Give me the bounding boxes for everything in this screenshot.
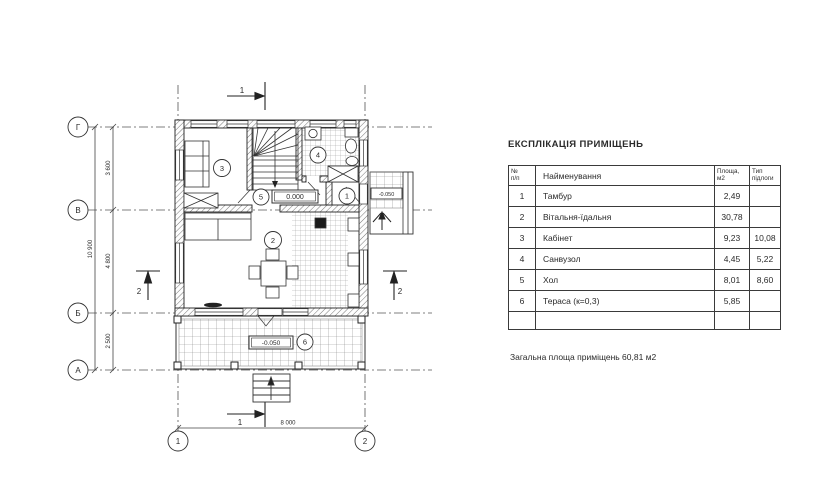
table-row: 6 Тераса (к=0,3) 5,85	[509, 291, 781, 312]
grid-bubble-b: Б	[68, 303, 88, 323]
section-mark-1-top	[227, 82, 265, 110]
row-num: 6	[509, 291, 536, 312]
staircase	[252, 128, 298, 190]
row-area: 9,23	[715, 228, 750, 249]
row-name: Хол	[536, 270, 715, 291]
svg-text:5: 5	[259, 193, 263, 202]
window-right-2	[360, 250, 368, 284]
window-bottom-2	[283, 309, 308, 316]
row-num: 4	[509, 249, 536, 270]
elevation-hall: 0.000	[272, 190, 318, 203]
window-top-3	[257, 121, 295, 128]
svg-text:Г: Г	[76, 123, 81, 132]
sofa-study	[185, 141, 209, 187]
svg-text:0.000: 0.000	[286, 194, 304, 201]
section-mark-2-right	[383, 271, 407, 300]
dim-seg-ba: 2 500	[106, 333, 112, 349]
row-num: 1	[509, 186, 536, 207]
entrance-porch	[370, 172, 413, 234]
row-floor	[750, 291, 781, 312]
grid-bubble-1: 1	[168, 431, 188, 451]
row-area: 5,85	[715, 291, 750, 312]
section-label-right: 2	[398, 287, 403, 296]
sink-bath	[346, 157, 358, 166]
section-mark-1-bottom	[227, 402, 265, 427]
grid-bubble-2: 2	[355, 431, 375, 451]
stove	[315, 218, 326, 228]
header-floor: Тип підлоги	[750, 166, 781, 186]
svg-text:А: А	[75, 366, 81, 375]
explication-table: № п/п Найменування Площа, м2 Тип підлоги…	[508, 165, 781, 330]
svg-text:В: В	[75, 206, 80, 215]
svg-text:3: 3	[220, 164, 224, 173]
dim-seg-vb: 4 800	[106, 253, 112, 269]
room-label-6: 6	[297, 334, 313, 350]
dim-seg-gv: 3 600	[106, 160, 112, 176]
svg-text:2: 2	[271, 236, 275, 245]
row-floor	[750, 186, 781, 207]
grid-bubble-v: В	[68, 200, 88, 220]
total-area-note: Загальна площа приміщень 60,81 м2	[510, 352, 656, 362]
floor-plan: 10 900 3 600 4 800 2 500 8 000	[0, 0, 460, 493]
door-leaf-study	[238, 190, 250, 203]
header-name: Найменування	[536, 166, 715, 186]
window-left-2	[176, 243, 184, 283]
elevation-terrace: -0.050	[249, 336, 293, 349]
header-num: № п/п	[509, 166, 536, 186]
row-num: 2	[509, 207, 536, 228]
row-name: Вітальня-їдальня	[536, 207, 715, 228]
row-floor	[750, 207, 781, 228]
svg-text:4: 4	[316, 151, 320, 160]
window-top-2	[227, 121, 248, 128]
grid-bubble-a: А	[68, 360, 88, 380]
dim-total-width: 8 000	[280, 421, 296, 427]
svg-text:1: 1	[176, 437, 181, 446]
row-area: 4,45	[715, 249, 750, 270]
explication-title: ЕКСПЛІКАЦІЯ ПРИМІЩЕНЬ	[508, 139, 643, 150]
row-name: Санвузол	[536, 249, 715, 270]
kitchen-counter	[348, 218, 359, 307]
row-name: Тераса (к=0,3)	[536, 291, 715, 312]
room-label-5: 5	[253, 189, 269, 205]
table-header: № п/п Найменування Площа, м2 Тип підлоги	[509, 166, 781, 186]
terrace	[174, 316, 365, 402]
window-top-5	[344, 121, 356, 128]
row-name: Кабінет	[536, 228, 715, 249]
row-area: 8,01	[715, 270, 750, 291]
row-num: 5	[509, 270, 536, 291]
table-row-empty	[509, 312, 781, 330]
table-row: 3 Кабінет 9,23 10,08	[509, 228, 781, 249]
row-name: Тамбур	[536, 186, 715, 207]
sofa-living	[185, 213, 251, 240]
grid-bubble-g: Г	[68, 117, 88, 137]
window-right-1	[360, 140, 368, 166]
room-label-3: 3	[214, 160, 231, 177]
section-label-left: 2	[137, 287, 142, 296]
elevation-porch: -0.050	[371, 188, 402, 199]
room-label-4: 4	[310, 147, 326, 163]
svg-text:1: 1	[345, 192, 349, 201]
table-row: 4 Санвузол 4,45 5,22	[509, 249, 781, 270]
svg-text:Б: Б	[75, 309, 80, 318]
drawing-sheet: 10 900 3 600 4 800 2 500 8 000	[0, 0, 813, 493]
row-area: 2,49	[715, 186, 750, 207]
window-top-1	[191, 121, 217, 128]
dining-table	[249, 249, 298, 298]
svg-text:-0.050: -0.050	[262, 340, 281, 347]
wardrobe-hall	[328, 166, 358, 182]
svg-text:-0.050: -0.050	[379, 192, 395, 198]
floor-mat	[204, 303, 222, 308]
window-bottom-1	[195, 309, 243, 316]
svg-text:6: 6	[303, 338, 307, 347]
room-label-2: 2	[265, 232, 282, 249]
table-row: 5 Хол 8,01 8,60	[509, 270, 781, 291]
table-row: 1 Тамбур 2,49	[509, 186, 781, 207]
row-floor: 8,60	[750, 270, 781, 291]
dim-total-height: 10 900	[88, 239, 94, 258]
section-label-top: 1	[240, 86, 245, 95]
row-num: 3	[509, 228, 536, 249]
window-left-1	[176, 150, 184, 180]
window-top-4	[310, 121, 336, 128]
header-area: Площа, м2	[715, 166, 750, 186]
row-floor: 10,08	[750, 228, 781, 249]
row-floor: 5,22	[750, 249, 781, 270]
section-label-bottom: 1	[238, 418, 243, 427]
row-area: 30,78	[715, 207, 750, 228]
room-label-1: 1	[339, 188, 355, 204]
washing-machine	[305, 127, 321, 140]
table-row: 2 Вітальня-їдальня 30,78	[509, 207, 781, 228]
svg-text:2: 2	[363, 437, 368, 446]
terrace-steps	[253, 374, 290, 402]
desk-study	[184, 193, 218, 208]
